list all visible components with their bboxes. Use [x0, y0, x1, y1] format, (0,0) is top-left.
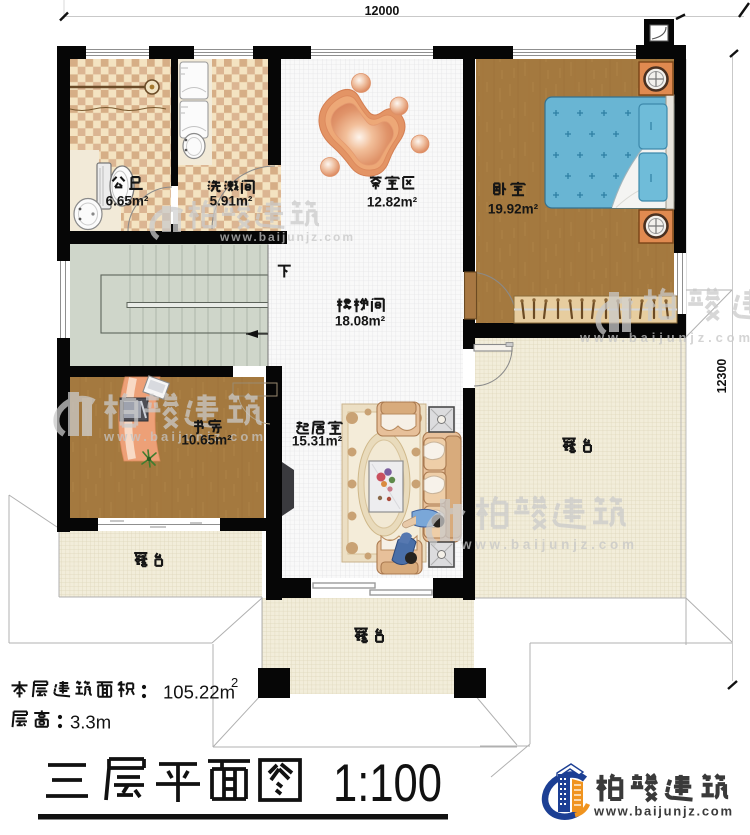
svg-text:12.82m²: 12.82m² [367, 195, 418, 210]
svg-text:6.65m²: 6.65m² [106, 194, 149, 209]
svg-text:18.08m²: 18.08m² [335, 314, 386, 329]
svg-text:3.3m: 3.3m [70, 712, 111, 733]
svg-text:10.65m²: 10.65m² [181, 433, 232, 448]
svg-text:5.91m²: 5.91m² [210, 194, 253, 209]
svg-text:1:100: 1:100 [333, 754, 442, 813]
svg-text:15.31m²: 15.31m² [292, 434, 343, 449]
svg-text:12300: 12300 [715, 359, 729, 394]
svg-text:105.22m: 105.22m [163, 682, 235, 703]
svg-text:12000: 12000 [365, 4, 400, 18]
svg-text:19.92m²: 19.92m² [488, 202, 539, 217]
svg-text:2: 2 [231, 675, 238, 690]
